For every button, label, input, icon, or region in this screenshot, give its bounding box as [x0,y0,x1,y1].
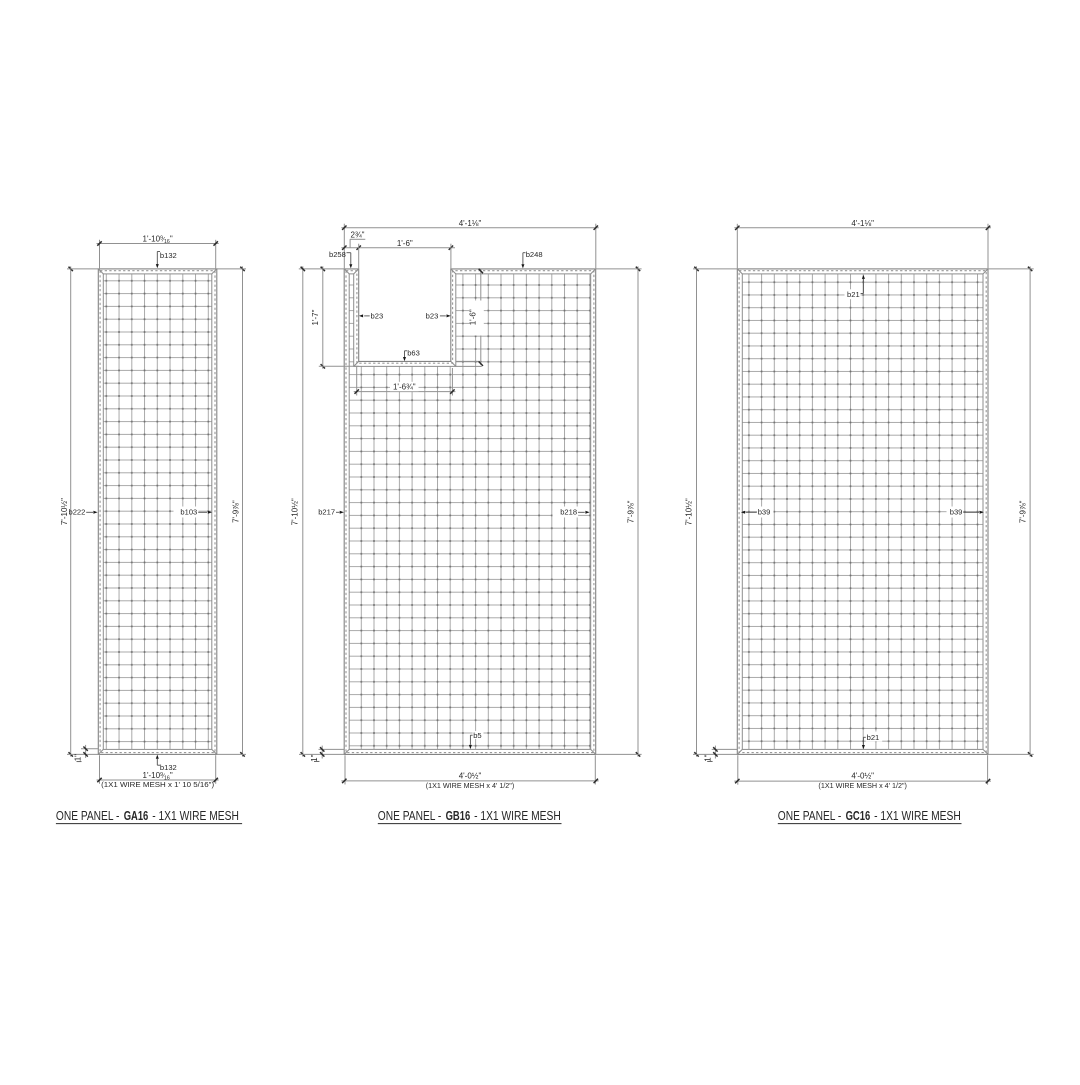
svg-text:7'-10½": 7'-10½" [685,498,694,525]
svg-text:1'-6": 1'-6" [468,309,477,325]
svg-text:7'-9⅞": 7'-9⅞" [1018,500,1027,523]
svg-text:4'-0½": 4'-0½" [459,772,482,781]
svg-text:b39: b39 [950,507,963,516]
svg-text:(1X1 WIRE MESH x 4' 1/2"): (1X1 WIRE MESH x 4' 1/2") [818,783,907,790]
svg-text:1'-7": 1'-7" [311,309,320,325]
svg-text:1": 1" [703,754,712,761]
svg-text:b21: b21 [847,290,860,299]
svg-text:- 1X1 WIRE MESH: - 1X1 WIRE MESH [874,808,961,823]
svg-text:1": 1" [74,754,83,761]
svg-text:b222: b222 [68,507,85,516]
svg-text:b132: b132 [160,251,177,260]
svg-text:b5: b5 [473,731,481,740]
svg-text:b218: b218 [560,507,577,516]
svg-text:(1X1 WIRE MESH x 1' 10 5/16"): (1X1 WIRE MESH x 1' 10 5/16") [101,782,214,789]
svg-text:4'-1⅛": 4'-1⅛" [851,219,874,228]
svg-text:b21: b21 [867,733,880,742]
svg-text:4'-1⅛": 4'-1⅛" [459,219,482,228]
svg-text:7'-9⅞": 7'-9⅞" [232,500,241,523]
svg-text:b23: b23 [371,311,384,320]
svg-text:b258: b258 [329,250,346,259]
svg-text:ONE PANEL -: ONE PANEL - [378,808,442,823]
svg-text:ONE PANEL -: ONE PANEL - [56,808,120,823]
svg-text:1'-6¾": 1'-6¾" [393,382,416,391]
svg-text:GB16: GB16 [446,808,471,823]
svg-text:b63: b63 [407,348,420,357]
svg-text:- 1X1 WIRE MESH: - 1X1 WIRE MESH [152,808,239,823]
svg-text:GA16: GA16 [124,808,149,823]
svg-text:b103: b103 [180,507,197,516]
svg-text:7'-9⅞": 7'-9⅞" [626,500,635,523]
svg-text:2¾": 2¾" [351,231,365,240]
svg-text:- 1X1 WIRE MESH: - 1X1 WIRE MESH [474,808,561,823]
svg-text:1'-6": 1'-6" [397,239,413,248]
svg-text:7'-10½": 7'-10½" [290,498,299,525]
svg-text:(1X1 WIRE MESH x 4' 1/2"): (1X1 WIRE MESH x 4' 1/2") [426,783,515,790]
svg-text:b217: b217 [318,507,335,516]
svg-text:4'-0½": 4'-0½" [851,772,874,781]
svg-text:b39: b39 [758,507,771,516]
svg-text:b248: b248 [526,250,543,259]
svg-text:b23: b23 [426,311,439,320]
svg-text:ONE PANEL -: ONE PANEL - [778,808,842,823]
svg-text:b132: b132 [160,763,177,772]
svg-text:GC16: GC16 [846,808,871,823]
svg-text:1": 1" [310,754,319,761]
